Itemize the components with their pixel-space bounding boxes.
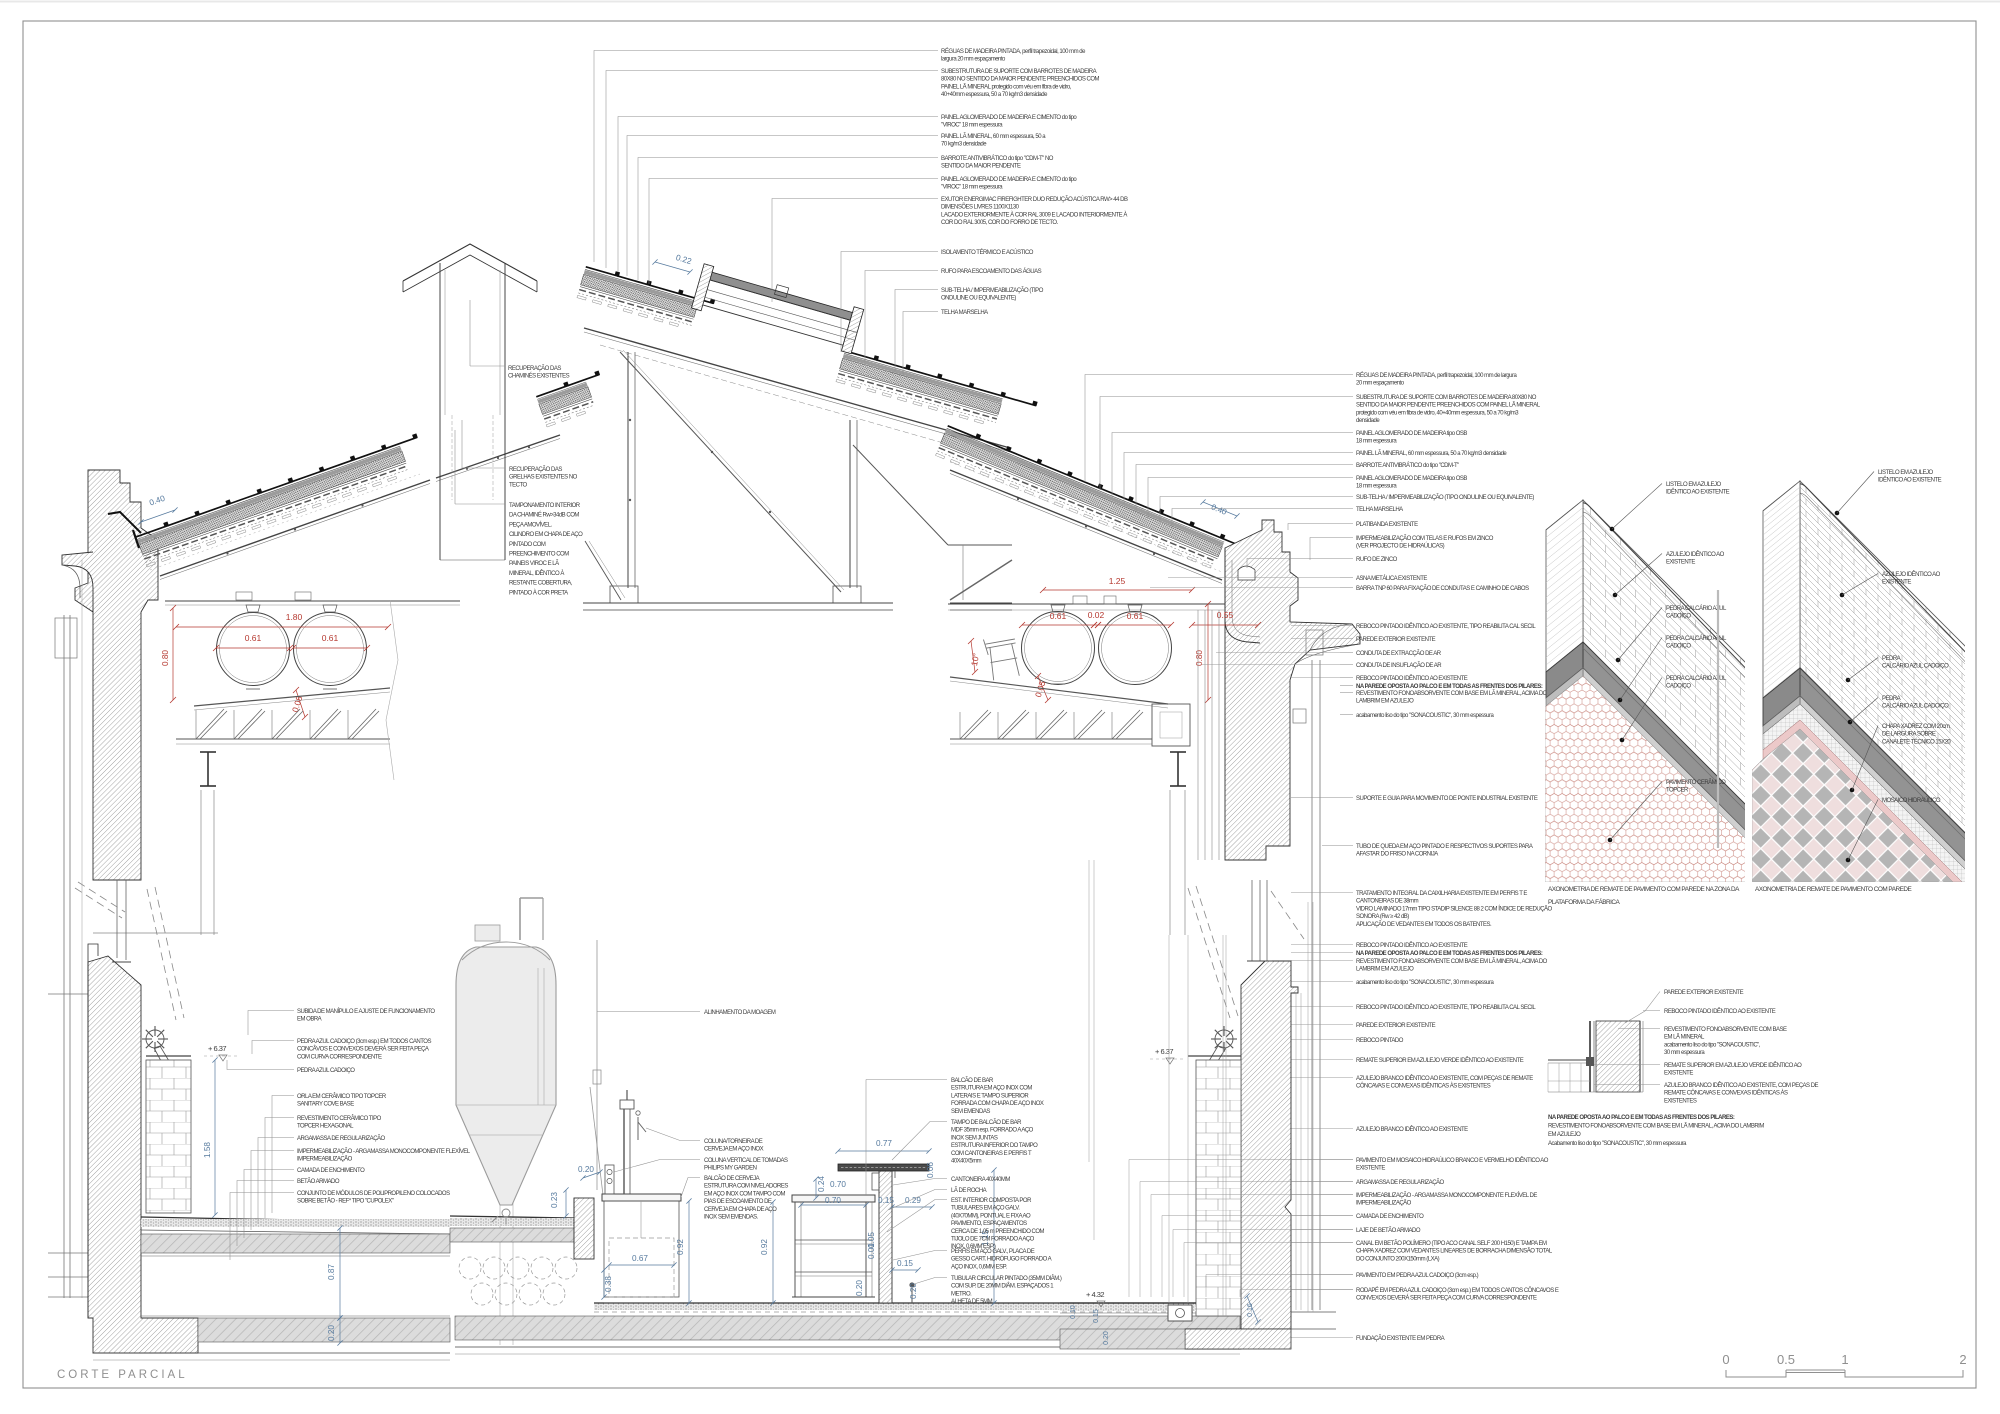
svg-text:SENTIDO DA MAIOR PENDENTE PREE: SENTIDO DA MAIOR PENDENTE PREENCHIDOS CO… [1356,402,1541,409]
svg-text:CHAMINÉS EXISTENTES: CHAMINÉS EXISTENTES [508,373,570,380]
svg-text:(40X70MM), PONTUAL E FIXA AO: (40X70MM), PONTUAL E FIXA AO [951,1213,1031,1219]
svg-text:LACADO EXTERIORMENTE À COR RAL: LACADO EXTERIORMENTE À COR RAL 3009 E LA… [941,211,1127,218]
svg-text:REBOCO PINTADO IDÊNTICO AO EXI: REBOCO PINTADO IDÊNTICO AO EXISTENTE [1356,941,1468,949]
svg-text:COM CURVA CORRESPONDENTE: COM CURVA CORRESPONDENTE [297,1054,382,1060]
svg-text:PAINEL AGLOMERADO DE MADEIRA t: PAINEL AGLOMERADO DE MADEIRA tipo OSB [1356,476,1467,482]
svg-text:RUFO DE ZINCO: RUFO DE ZINCO [1356,557,1398,563]
svg-text:Acabamento liso do tipo "SONAC: Acabamento liso do tipo "SONACOUSTIC", 3… [1548,1141,1687,1147]
svg-text:PAINEL AGLOMERADO DE MADEIRA E: PAINEL AGLOMERADO DE MADEIRA E CIMENTO d… [941,177,1077,183]
svg-text:TELHA MARSELHA: TELHA MARSELHA [1356,507,1403,513]
svg-text:ONDULINE OU EQUIVALENTE): ONDULINE OU EQUIVALENTE) [941,296,1016,302]
svg-text:IMPERMEABILIZAÇÃO: IMPERMEABILIZAÇÃO [297,1156,353,1163]
svg-text:IMPERMEABILIZAÇÃO - ARGAMASSA: IMPERMEABILIZAÇÃO - ARGAMASSA MONOCOMPON… [297,1148,471,1155]
svg-text:PAINEL AGLOMERADO DE MADEIRA t: PAINEL AGLOMERADO DE MADEIRA tipo OSB [1356,431,1467,437]
svg-text:BETÃO ARMADO: BETÃO ARMADO [297,1178,340,1185]
svg-text:ALHETA DE 5MM: ALHETA DE 5MM [951,1299,993,1305]
svg-text:PEDRA AZUL CADOIÇO (3cm esp.): PEDRA AZUL CADOIÇO (3cm esp.) EM TODOS C… [297,1039,431,1045]
svg-text:TUBULARES EM AÇO GALV.: TUBULARES EM AÇO GALV. [951,1206,1020,1212]
svg-text:RUFO PARA ESCOAMENTO DAS ÁGUAS: RUFO PARA ESCOAMENTO DAS ÁGUAS [941,268,1042,275]
svg-text:densidade: densidade [1356,418,1380,424]
svg-text:SUB-TELHA / IMPERMEABILIZAÇÃO: SUB-TELHA / IMPERMEABILIZAÇÃO (TIPO ONDU… [1356,494,1534,501]
svg-text:EST. INTERIOR COMPOSTA POR: EST. INTERIOR COMPOSTA POR [951,1198,1032,1204]
svg-text:0.20: 0.20 [578,1165,594,1174]
svg-text:0.24: 0.24 [817,1176,826,1192]
svg-text:PAVIMENTO EM MOSAICO HIDRAÚLIC: PAVIMENTO EM MOSAICO HIDRAÚLICO BRANCO E… [1356,1156,1549,1164]
svg-text:COLUNA VERTICAL DE TOMADAS: COLUNA VERTICAL DE TOMADAS [704,1158,788,1164]
svg-text:AÇO INOX, 0,6MM ESP.: AÇO INOX, 0,6MM ESP. [951,1264,1007,1270]
svg-text:EM AZULEJO: EM AZULEJO [1548,1132,1581,1138]
svg-text:0.10: 0.10 [1070,1305,1077,1319]
svg-text:RÉGUAS DE MADEIRA PINTADA, per: RÉGUAS DE MADEIRA PINTADA, perfil trapez… [941,48,1086,55]
svg-text:1.80: 1.80 [286,612,303,622]
svg-text:PAINEL LÃ MINERAL, 60 mm espes: PAINEL LÃ MINERAL, 60 mm espessura, 50 a [941,133,1046,140]
svg-text:18 mm espessura: 18 mm espessura [1356,484,1397,490]
svg-text:COM SUP. DE 20MM DIÂM. ESPAÇAD: COM SUP. DE 20MM DIÂM. ESPAÇADOS 1 [951,1283,1054,1290]
svg-text:CADOIÇO: CADOIÇO [1666,684,1691,690]
svg-text:0.61: 0.61 [1127,611,1144,621]
svg-text:0: 0 [1722,1352,1729,1367]
svg-text:TELHA MARSELHA: TELHA MARSELHA [941,310,988,316]
svg-text:CERVEJA EM AÇO INOX: CERVEJA EM AÇO INOX [704,1147,764,1153]
svg-text:PAREDE EXTERIOR EXISTENTE: PAREDE EXTERIOR EXISTENTE [1356,637,1436,643]
svg-text:DA CHAMINÉ Rw>34dB COM: DA CHAMINÉ Rw>34dB COM [509,512,579,519]
svg-text:0.77: 0.77 [876,1139,892,1148]
svg-text:PEDRA AZUL CADOIÇO: PEDRA AZUL CADOIÇO [297,1068,355,1074]
svg-text:METRO.: METRO. [951,1291,972,1297]
svg-text:PEÇA AMOVÍVEL.: PEÇA AMOVÍVEL. [509,521,553,528]
svg-text:CANAL EM BETÃO POLÍMERO (TIPO: CANAL EM BETÃO POLÍMERO (TIPO ACO CANAL … [1356,1240,1547,1247]
svg-text:PEDRA: PEDRA [1882,696,1901,702]
svg-text:EXISTENTE: EXISTENTE [1882,580,1911,586]
svg-text:REBOCO PINTADO IDÊNTICO AO EXI: REBOCO PINTADO IDÊNTICO AO EXISTENTE, TI… [1356,1003,1536,1011]
svg-text:0.67: 0.67 [632,1254,648,1263]
svg-text:BARROTE ANTIVIBRÁTICO do tipo: BARROTE ANTIVIBRÁTICO do tipo "CDM-T" NO [941,155,1054,162]
svg-text:0.92: 0.92 [676,1239,685,1255]
svg-text:NA PAREDE OPOSTA AO PALCO E EM: NA PAREDE OPOSTA AO PALCO E EM TODAS AS … [1548,1115,1735,1121]
svg-text:2: 2 [1959,1352,1966,1367]
svg-text:0.61: 0.61 [1050,611,1067,621]
svg-text:BALCÃO DE CERVEJA: BALCÃO DE CERVEJA [704,1175,760,1182]
svg-text:IMPERMEABILIZAÇÃO: IMPERMEABILIZAÇÃO [1356,1200,1412,1207]
svg-text:PAINEL AGLOMERADO DE MADEIRA E: PAINEL AGLOMERADO DE MADEIRA E CIMENTO d… [941,115,1077,121]
svg-text:CAMADA DE ENCHIMENTO: CAMADA DE ENCHIMENTO [297,1168,365,1174]
svg-text:ESTRUTURA INFERIOR DO TAMPO: ESTRUTURA INFERIOR DO TAMPO [951,1143,1038,1149]
svg-text:APLICAÇÃO DE VEDANTES EM TODOS: APLICAÇÃO DE VEDANTES EM TODOS OS BATENT… [1356,921,1492,928]
svg-text:BARROTE ANTIVIBRÁTICO do tipo: BARROTE ANTIVIBRÁTICO do tipo "CDM-T" [1356,462,1459,469]
svg-text:PIAS DE ESCOAMENTO DE: PIAS DE ESCOAMENTO DE [704,1199,772,1205]
svg-text:CONJUNTO DE MÓDULOS DE POLIPRO: CONJUNTO DE MÓDULOS DE POLIPROPILENO COL… [297,1190,450,1197]
svg-text:ARGAMASSA DE REGULARIZAÇÃO: ARGAMASSA DE REGULARIZAÇÃO [297,1135,386,1142]
svg-text:IMPERMEABILIZAÇÃO COM TELAS E: IMPERMEABILIZAÇÃO COM TELAS E RUFOS EM Z… [1356,535,1494,542]
svg-text:CALCÁRIO AZUL CADOIÇO: CALCÁRIO AZUL CADOIÇO [1882,663,1949,670]
svg-text:PAINEL LÃ MINERAL, 60 mm espes: PAINEL LÃ MINERAL, 60 mm espessura, 50 a… [1356,450,1507,457]
svg-text:largura 20 mm espaçamento: largura 20 mm espaçamento [941,57,1006,63]
svg-text:0.80: 0.80 [1195,650,1204,666]
svg-text:0.15: 0.15 [1093,1309,1100,1323]
svg-text:COR DO RAL 3005, COR DO FORRO: COR DO RAL 3005, COR DO FORRO DE TECTO. [941,220,1059,226]
svg-text:COM CANTONEIRAS E PERFIS T: COM CANTONEIRAS E PERFIS T [951,1151,1032,1157]
svg-text:IDÊNTICO AO EXISTENTE: IDÊNTICO AO EXISTENTE [1666,488,1730,496]
svg-text:DIMENSÕES LIVRES 1100X1130: DIMENSÕES LIVRES 1100X1130 [941,204,1020,211]
svg-text:TECTO: TECTO [509,482,528,488]
svg-text:AZULEJO BRANCO IDÊNTICO AO EX: AZULEJO BRANCO IDÊNTICO AO EXISTENTE [1356,1125,1468,1133]
svg-text:0.61: 0.61 [322,633,339,643]
svg-text:CANTONEIRA 40X40MM: CANTONEIRA 40X40MM [951,1177,1010,1183]
svg-text:LAMBRIM EM AZULEJO: LAMBRIM EM AZULEJO [1356,699,1414,705]
svg-text:"VIROC" 18 mm espessura: "VIROC" 18 mm espessura [941,123,1003,129]
svg-text:IMPERMEABILIZAÇÃO - ARGAMASSA: IMPERMEABILIZAÇÃO - ARGAMASSA MONOCOMPON… [1356,1192,1537,1199]
svg-text:LAMBRIM EM AZULEJO: LAMBRIM EM AZULEJO [1356,967,1414,973]
svg-text:PINTADO COM: PINTADO COM [509,542,546,548]
svg-text:+ 6.37: + 6.37 [208,1044,226,1053]
svg-text:+ 4.32: + 4.32 [1086,1290,1104,1299]
svg-text:REBOCO PINTADO IDÊNTICO AO EXI: REBOCO PINTADO IDÊNTICO AO EXISTENTE, TI… [1356,622,1536,630]
svg-text:0.20: 0.20 [1103,1331,1110,1345]
svg-text:EM AÇO INOX COM TAMPO COM: EM AÇO INOX COM TAMPO COM [704,1191,785,1197]
svg-text:GRELHAS EXISTENTES NO: GRELHAS EXISTENTES NO [509,475,578,481]
svg-text:GESSO CART. HIDRÓFUGO FORRADO: GESSO CART. HIDRÓFUGO FORRADO A [951,1256,1052,1263]
svg-text:PERFIS EM AÇO GALV., PLACA DE: PERFIS EM AÇO GALV., PLACA DE [951,1249,1035,1255]
svg-text:0.23: 0.23 [550,1192,559,1208]
svg-text:RODAPÉ EM PEDRA AZUL CADOIÇO (: RODAPÉ EM PEDRA AZUL CADOIÇO (3cm esp.) … [1356,1287,1559,1294]
svg-text:CÔNCAVAS E CONVEXAS IDÊNTICAS: CÔNCAVAS E CONVEXAS IDÊNTICAS ÀS EXISTEN… [1356,1082,1491,1090]
svg-text:REBOCO PINTADO IDÊNTICO AO EXI: REBOCO PINTADO IDÊNTICO AO EXISTENTE [1664,1007,1776,1015]
svg-text:0.06: 0.06 [926,1162,935,1178]
svg-text:CONVEXOS DEVERÁ SER FEITA PEÇA: CONVEXOS DEVERÁ SER FEITA PEÇA COM CURVA… [1356,1295,1537,1302]
svg-text:0.20: 0.20 [855,1280,864,1296]
svg-text:FORRADA COM CHAPA DE AÇO INOX: FORRADA COM CHAPA DE AÇO INOX [951,1101,1044,1107]
svg-text:0.01: 0.01 [867,1243,876,1259]
svg-text:TOPCER HEXAGONAL: TOPCER HEXAGONAL [297,1124,354,1130]
svg-text:CILINDRO EM CHAPA DE AÇO: CILINDRO EM CHAPA DE AÇO [509,532,583,538]
svg-text:EXUTOR ENERGIMAC FIREFIGHTER D: EXUTOR ENERGIMAC FIREFIGHTER DUO REDUÇÃO… [941,196,1128,203]
svg-text:TIJOLO DE 7CM FORRADO A AÇO: TIJOLO DE 7CM FORRADO A AÇO [951,1237,1035,1243]
svg-text:ARGAMASSA DE REGULARIZAÇÃO: ARGAMASSA DE REGULARIZAÇÃO [1356,1179,1445,1186]
svg-text:0.02: 0.02 [1088,610,1105,620]
svg-text:0.87: 0.87 [327,1264,336,1280]
svg-text:+ 6.37: + 6.37 [1155,1047,1173,1056]
svg-text:PAINEL LÃ MINERAL protegido co: PAINEL LÃ MINERAL protegido com véu em f… [941,83,1072,90]
svg-text:SUB-TELHA / IMPERMEABILIZAÇÃO: SUB-TELHA / IMPERMEABILIZAÇÃO (TIPO [941,287,1044,294]
svg-text:NA PAREDE OPOSTA AO PALCO E EM: NA PAREDE OPOSTA AO PALCO E EM TODAS AS … [1356,951,1543,957]
svg-text:CERVEJA EM CHAPA DE AÇO: CERVEJA EM CHAPA DE AÇO [704,1207,777,1213]
svg-text:20 mm espaçamento: 20 mm espaçamento [1356,381,1405,387]
svg-text:FUNDAÇÃO EXISTENTE EM PEDRA: FUNDAÇÃO EXISTENTE EM PEDRA [1356,1335,1445,1342]
svg-text:PHILIPS MY GARDEN: PHILIPS MY GARDEN [704,1166,757,1172]
svg-text:TAMPO DE BALCÃO DE BAR: TAMPO DE BALCÃO DE BAR [951,1119,1022,1126]
svg-text:0.70: 0.70 [830,1180,846,1189]
svg-text:REVESTIMENTO CERÂMICO TIPO: REVESTIMENTO CERÂMICO TIPO [297,1115,382,1122]
svg-text:(VER PROJECTO DE HIDRAÚLICAS): (VER PROJECTO DE HIDRAÚLICAS) [1356,543,1445,550]
svg-text:REMATE SUPERIOR EM AZULEJO VER: REMATE SUPERIOR EM AZULEJO VERDE IDÊNTIC… [1664,1061,1802,1069]
svg-text:80X80 NO SENTIDO DA MAIOR PEND: 80X80 NO SENTIDO DA MAIOR PENDENTE PREEN… [941,77,1100,83]
svg-text:BALCÃO DE BAR: BALCÃO DE BAR [951,1077,994,1084]
svg-text:ALINHAMENTO DA MOAGEM: ALINHAMENTO DA MOAGEM [704,1010,776,1016]
svg-text:CERCA DE 1.05 m PREENCHIDO COM: CERCA DE 1.05 m PREENCHIDO COM [951,1229,1045,1235]
svg-text:AXONOMETRIA DE REMATE DE PAVIM: AXONOMETRIA DE REMATE DE PAVIMENTO COM P… [1548,886,1740,893]
svg-text:TUBULAR CIRCULAR PINTADO (35MM: TUBULAR CIRCULAR PINTADO (35MM DIÂM.) [951,1275,1062,1282]
svg-text:INOX SEM JUNTAS: INOX SEM JUNTAS [951,1135,998,1141]
svg-text:LATERAIS E TAMPO SUPERIOR: LATERAIS E TAMPO SUPERIOR [951,1093,1029,1099]
svg-text:protegido com véu em fibra de: protegido com véu em fibra de vidro, 40+… [1356,410,1519,416]
svg-text:MDF 35mm esp. FORRADO A AÇO: MDF 35mm esp. FORRADO A AÇO [951,1128,1034,1134]
svg-text:ISOLAMENTO TÉRMICO E ACÚSTICO: ISOLAMENTO TÉRMICO E ACÚSTICO [941,249,1034,256]
svg-text:CHAPA XADREZ COM 20cm: CHAPA XADREZ COM 20cm [1882,724,1950,730]
svg-text:RÉGUAS DE MADEIRA PINTADA, per: RÉGUAS DE MADEIRA PINTADA, perfil trapez… [1356,372,1517,379]
svg-text:MINERAL, IDÊNTICO À: MINERAL, IDÊNTICO À [509,569,564,577]
svg-text:1.58: 1.58 [203,1142,212,1158]
svg-text:RECUPERAÇÃO DAS: RECUPERAÇÃO DAS [509,466,562,473]
svg-text:0.80: 0.80 [161,650,170,666]
svg-text:REMATE CÔNCAVAS E CONVEXAS IDÊ: REMATE CÔNCAVAS E CONVEXAS IDÊNTICAS ÀS [1664,1089,1788,1097]
svg-text:REVESTIMENTO FONOABSORVENTE CO: REVESTIMENTO FONOABSORVENTE COM BASE EM … [1356,690,1548,697]
svg-text:0.20: 0.20 [909,1283,918,1299]
svg-text:CADOIÇO: CADOIÇO [1666,644,1691,650]
svg-text:SENTIDO DA MAIOR PENDENTE: SENTIDO DA MAIOR PENDENTE [941,164,1021,170]
svg-text:DO CONJUNTO 200X150mm (LXA): DO CONJUNTO 200X150mm (LXA) [1356,1256,1440,1262]
svg-text:PINTADO À COR PRETA: PINTADO À COR PRETA [509,589,568,596]
svg-text:INOX SEM EMENDAS.: INOX SEM EMENDAS. [704,1215,759,1221]
svg-text:LISTELO EM AZULEJO: LISTELO EM AZULEJO [1666,482,1722,488]
svg-text:COLUNA/TORNEIRA DE: COLUNA/TORNEIRA DE [704,1139,763,1145]
svg-text:RESTANTE COBERTURA,: RESTANTE COBERTURA, [509,581,573,587]
svg-text:AZULEJO IDÊNTICO AO: AZULEJO IDÊNTICO AO [1882,570,1941,578]
svg-text:0.15: 0.15 [878,1196,894,1205]
svg-text:PEDRA: PEDRA [1882,656,1901,662]
svg-text:0.5: 0.5 [1777,1352,1795,1367]
svg-text:"VIROC" 18 mm espessura: "VIROC" 18 mm espessura [941,185,1003,191]
svg-text:SOBRE BETÃO - REF* TIPO "CUPOL: SOBRE BETÃO - REF* TIPO "CUPOLEX" [297,1198,394,1205]
svg-text:REVESTIMENTO FONOABSORVENTE CO: REVESTIMENTO FONOABSORVENTE COM BASE EM … [1356,958,1548,965]
svg-text:TRATAMENTO INTEGRAL DA CAIXILH: TRATAMENTO INTEGRAL DA CAIXILHARIA EXIST… [1356,891,1527,897]
svg-text:SANITARY COVE BASE: SANITARY COVE BASE [297,1102,354,1108]
svg-text:PAREDE EXTERIOR EXISTENTE: PAREDE EXTERIOR EXISTENTE [1356,1023,1436,1029]
svg-text:0.38: 0.38 [604,1276,613,1292]
svg-text:REBOCO PINTADO: REBOCO PINTADO [1356,1038,1404,1044]
svg-text:0.92: 0.92 [760,1239,769,1255]
svg-text:ASNA METÁLICA EXISTENTE: ASNA METÁLICA EXISTENTE [1356,575,1427,582]
svg-text:70 kg/m3 densidade: 70 kg/m3 densidade [941,142,987,148]
svg-text:acabamento liso do tipo "SONAC: acabamento liso do tipo "SONACOUSTIC", 3… [1356,713,1494,719]
svg-text:acabamento liso do tipo "SONAC: acabamento liso do tipo "SONACOUSTIC", 3… [1356,980,1494,986]
svg-text:NA PAREDE OPOSTA AO PALCO E EM: NA PAREDE OPOSTA AO PALCO E EM TODAS AS … [1356,684,1543,690]
svg-text:CANALETE TÉCNICO 15X20: CANALETE TÉCNICO 15X20 [1882,738,1951,745]
svg-text:EXISTENTES: EXISTENTES [1664,1098,1697,1104]
svg-text:0.70: 0.70 [825,1196,841,1205]
svg-text:ESTRUTURA COM NIVELADORES: ESTRUTURA COM NIVELADORES [704,1184,788,1190]
svg-text:SONORA (Rw ≥ 42 dB): SONORA (Rw ≥ 42 dB) [1356,914,1409,920]
svg-text:18 mm espessura: 18 mm espessura [1356,439,1397,445]
svg-text:CONDUTA DE INSUFLAÇÃO DE AR: CONDUTA DE INSUFLAÇÃO DE AR [1356,662,1442,669]
svg-text:AZULEJO IDÊNTICO AO: AZULEJO IDÊNTICO AO [1666,550,1725,558]
svg-text:1: 1 [1841,1352,1848,1367]
svg-text:DE LARGURA SOBRE: DE LARGURA SOBRE [1882,732,1936,738]
svg-text:EM LÃ MINERAL: EM LÃ MINERAL [1664,1034,1705,1041]
svg-text:AZULEJO BRANCO IDÊNTICO AO EX: AZULEJO BRANCO IDÊNTICO AO EXISTENTE, CO… [1664,1081,1819,1089]
svg-text:AXONOMETRIA DE REMATE DE PAVIM: AXONOMETRIA DE REMATE DE PAVIMENTO COM P… [1755,886,1911,893]
svg-text:30 mm espessura: 30 mm espessura [1664,1050,1705,1056]
svg-text:CORTE PARCIAL: CORTE PARCIAL [57,1369,188,1381]
svg-text:REVESTIMENTO FONOABSORVENTE CO: REVESTIMENTO FONOABSORVENTE COM BASE EM … [1548,1123,1764,1130]
svg-text:0.29: 0.29 [905,1196,921,1205]
svg-text:BARRA TNP 60 PARA FIXAÇÃO DE C: BARRA TNP 60 PARA FIXAÇÃO DE CONDUTAS E … [1356,585,1529,592]
svg-text:TAMPONAMENTO INTERIOR: TAMPONAMENTO INTERIOR [509,503,581,509]
svg-text:ORLA EM CERÂMICO TIPO TOPCER: ORLA EM CERÂMICO TIPO TOPCER [297,1093,387,1100]
svg-text:LAJE DE BETÃO ARMADO: LAJE DE BETÃO ARMADO [1356,1227,1421,1234]
svg-text:MOSAICO HIDRAÚLICO: MOSAICO HIDRAÚLICO [1882,797,1941,804]
svg-text:CALCÁRIO AZUL CADOIÇO: CALCÁRIO AZUL CADOIÇO [1882,703,1949,710]
svg-text:0.61: 0.61 [245,633,262,643]
svg-text:PREENCHIMENTO COM: PREENCHIMENTO COM [509,552,569,558]
svg-text:CHAPA XADREZ COM VEDANTES LINE: CHAPA XADREZ COM VEDANTES LINEARES DE BO… [1356,1248,1553,1255]
svg-text:40X40X5mm: 40X40X5mm [951,1159,982,1165]
svg-text:0.15: 0.15 [897,1259,913,1268]
svg-text:EM OBRA: EM OBRA [297,1017,322,1023]
svg-text:EXISTENTE: EXISTENTE [1664,1071,1693,1077]
svg-text:TUBO DE QUEDA EM AÇO PINTADO E: TUBO DE QUEDA EM AÇO PINTADO E RESPECTIV… [1356,844,1533,850]
svg-text:IDÊNTICO AO EXISTENTE: IDÊNTICO AO EXISTENTE [1878,476,1942,484]
svg-text:1.25: 1.25 [1109,576,1126,586]
svg-text:CAMADA DE ENCHIMENTO: CAMADA DE ENCHIMENTO [1356,1214,1424,1220]
svg-text:VIDRO LAMINADO 17mm TIPO STADI: VIDRO LAMINADO 17mm TIPO STADIP SILENCE … [1356,905,1553,912]
svg-text:REVESTIMENTO FONOABSORVENTE CO: REVESTIMENTO FONOABSORVENTE COM BASE [1664,1027,1787,1033]
svg-text:SEM EMENDAS: SEM EMENDAS [951,1109,990,1115]
svg-text:SUBESTRUTURA DE SUPORTE COM BA: SUBESTRUTURA DE SUPORTE COM BARROTES DE … [1356,395,1537,401]
svg-text:AZULEJO BRANCO IDÊNTICO AO EX: AZULEJO BRANCO IDÊNTICO AO EXISTENTE, CO… [1356,1074,1533,1082]
svg-text:AFASTAR DO FRISO NA CORNIJA: AFASTAR DO FRISO NA CORNIJA [1356,852,1438,858]
svg-text:0.20: 0.20 [327,1325,336,1341]
svg-text:acabamento liso do tipo "SONAC: acabamento liso do tipo "SONACOUSTIC", [1664,1042,1761,1048]
svg-text:PAINEIS VIROC E LÃ: PAINEIS VIROC E LÃ [509,560,559,567]
svg-text:PAVIMENTO EM PEDRA AZUL CADOIÇ: PAVIMENTO EM PEDRA AZUL CADOIÇO (3cm esp… [1356,1273,1479,1279]
svg-text:PAREDE EXTERIOR EXISTENTE: PAREDE EXTERIOR EXISTENTE [1664,990,1744,996]
svg-text:REBOCO PINTADO IDÊNTICO AO EXI: REBOCO PINTADO IDÊNTICO AO EXISTENTE [1356,674,1468,682]
svg-text:40+40mm espessura, 50 a 70 kg/: 40+40mm espessura, 50 a 70 kg/m3 densida… [941,92,1048,98]
svg-text:CADOIÇO: CADOIÇO [1666,614,1691,620]
svg-text:RECUPERAÇÃO DAS: RECUPERAÇÃO DAS [508,365,561,372]
svg-text:LÃ DE ROCHA: LÃ DE ROCHA [951,1187,987,1194]
svg-text:PLATAFORMA DA FÁBRICA: PLATAFORMA DA FÁBRICA [1548,897,1621,906]
svg-text:PLATIBANDA EXISTENTE: PLATIBANDA EXISTENTE [1356,522,1418,528]
svg-text:SUPORTE E GUIA PARA MOVIMENTO: SUPORTE E GUIA PARA MOVIMENTO DE PONTE I… [1356,796,1538,802]
svg-text:REMATE SUPERIOR EM AZULEJO VER: REMATE SUPERIOR EM AZULEJO VERDE IDÊNTIC… [1356,1056,1524,1064]
svg-text:CONCÂVOS E CONVEXOS DEVERÁ SER: CONCÂVOS E CONVEXOS DEVERÁ SER FEITA PEÇ… [297,1046,429,1053]
svg-text:EXISTENTE: EXISTENTE [1356,1166,1385,1172]
svg-text:CANTONEIRAS DE 38mm: CANTONEIRAS DE 38mm [1356,899,1419,905]
svg-text:SUBESTRUTURA DE SUPORTE COM BA: SUBESTRUTURA DE SUPORTE COM BARROTES DE … [941,69,1097,75]
svg-text:SUBIDA DE MANÍPULO E AJUSTE DE: SUBIDA DE MANÍPULO E AJUSTE DE FUNCIONAM… [297,1008,435,1015]
svg-text:PAVIMENTO, ESPAÇAMENTOS: PAVIMENTO, ESPAÇAMENTOS [951,1221,1027,1227]
svg-text:LISTELO EM AZULEJO: LISTELO EM AZULEJO [1878,470,1934,476]
svg-text:CONDUTA DE EXTRACÇÃO DE AR: CONDUTA DE EXTRACÇÃO DE AR [1356,650,1442,657]
svg-text:EXISTENTE: EXISTENTE [1666,560,1695,566]
svg-text:ESTRUTURA EM AÇO INOX COM: ESTRUTURA EM AÇO INOX COM [951,1086,1032,1092]
svg-text:TOPCER: TOPCER [1666,788,1689,794]
